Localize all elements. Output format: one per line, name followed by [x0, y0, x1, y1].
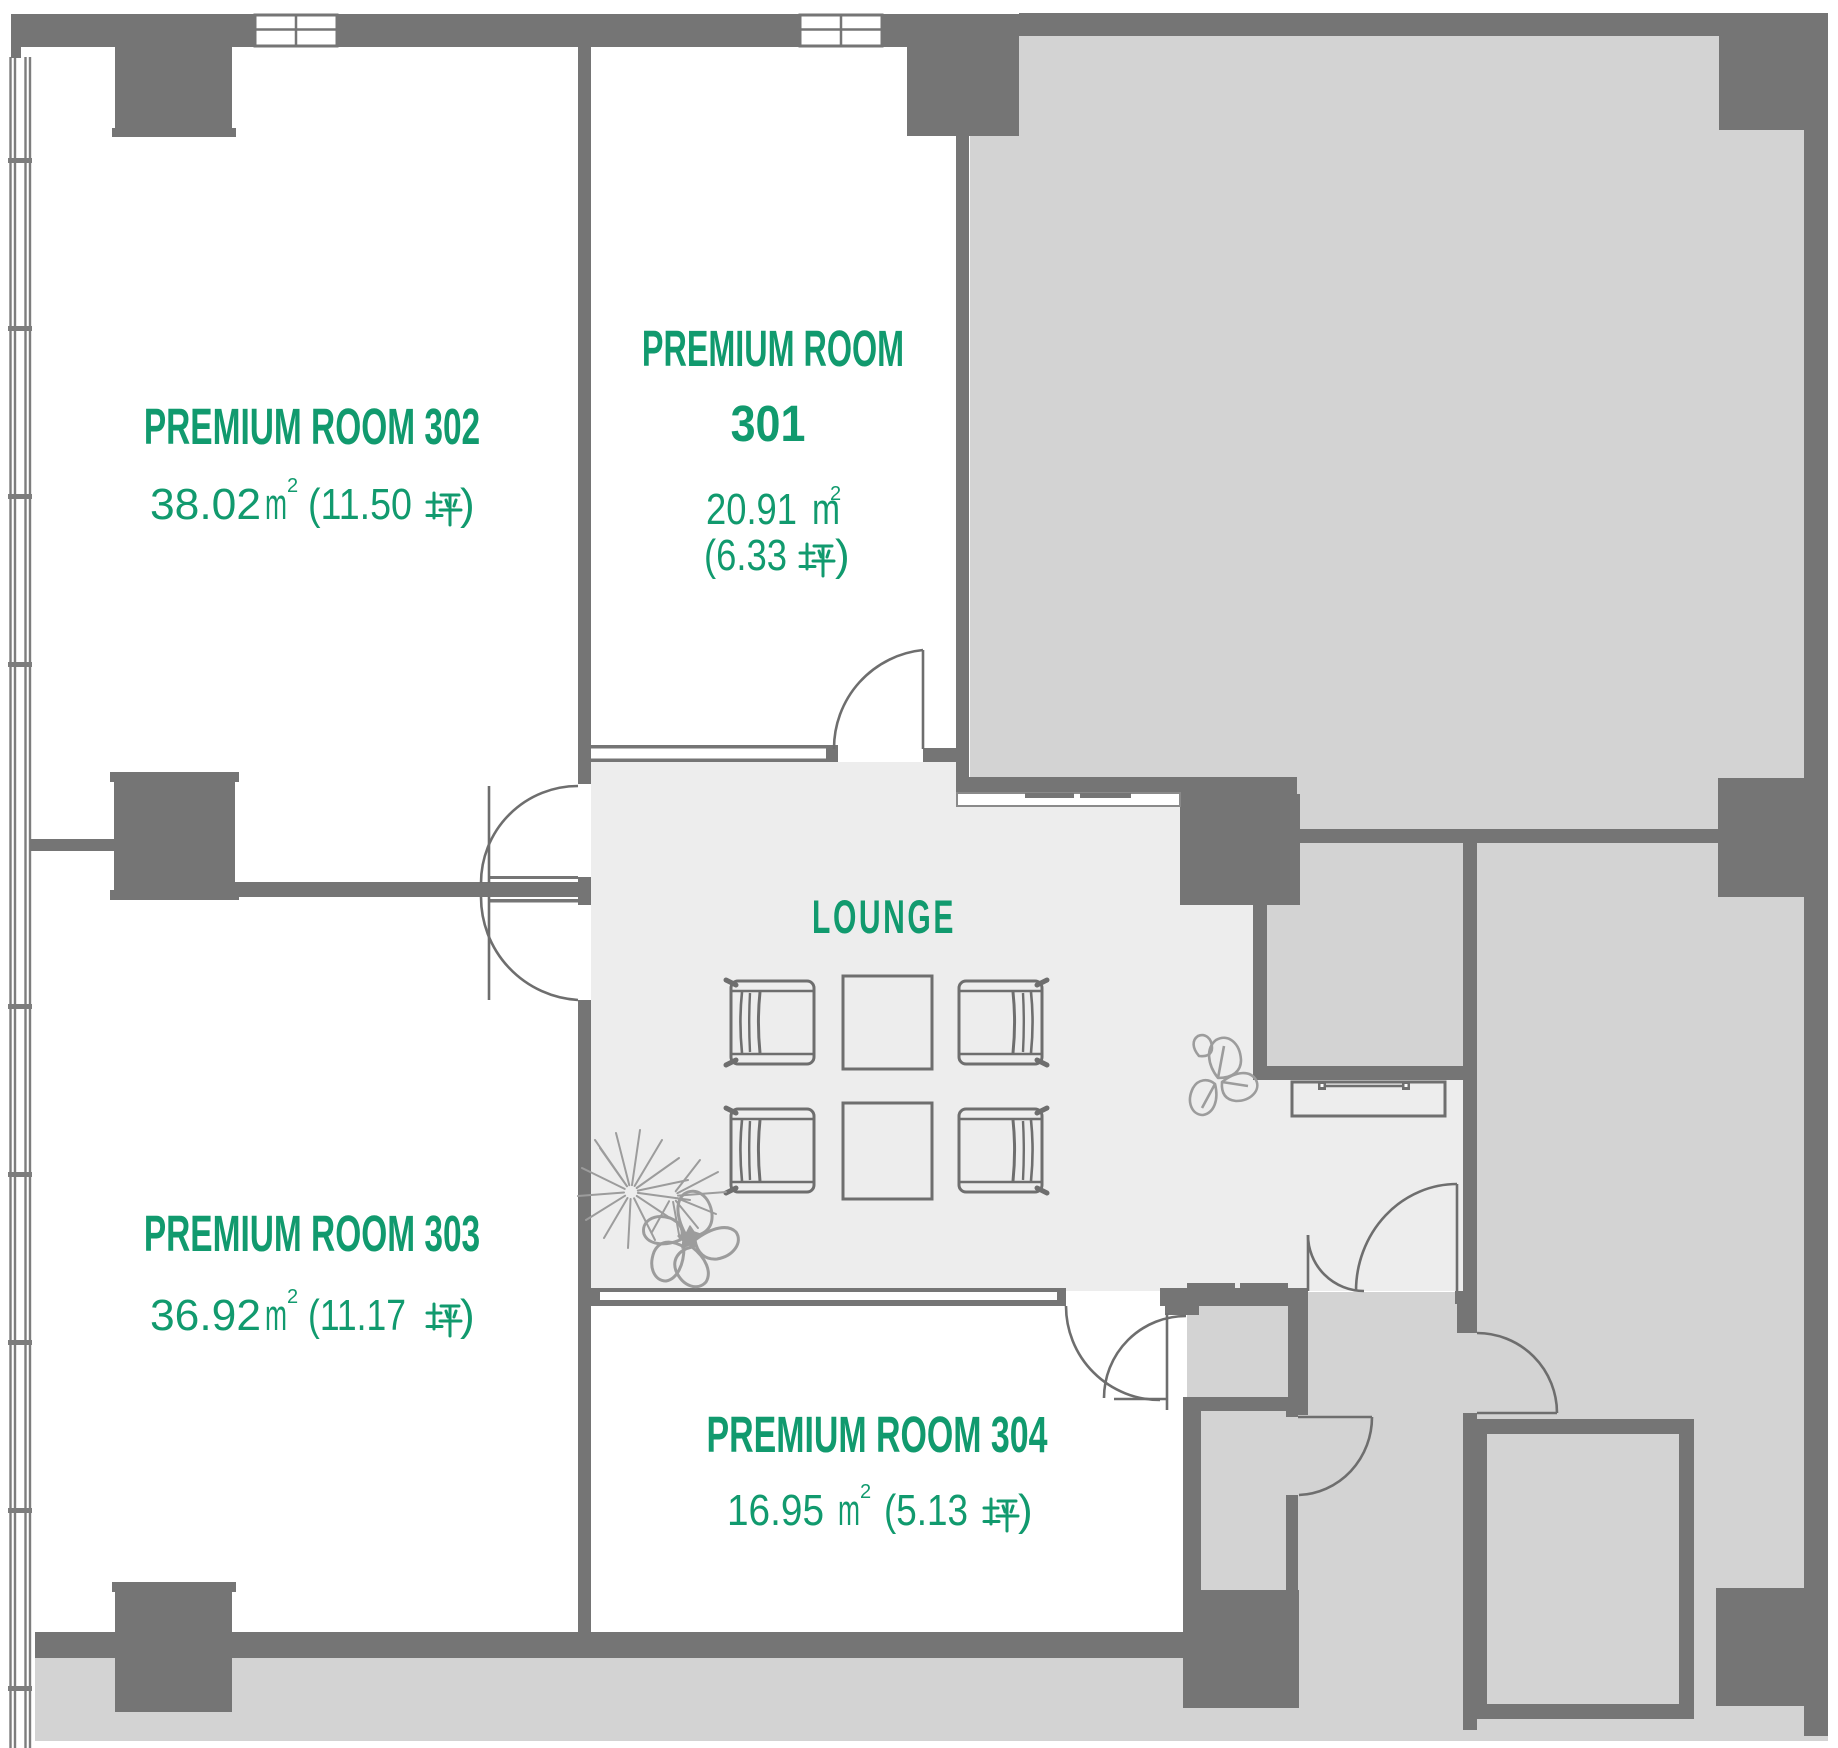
svg-text:20.91: 20.91	[706, 485, 797, 534]
svg-text:m: m	[838, 1486, 860, 1535]
svg-text:): )	[460, 480, 475, 529]
svg-text:38.02: 38.02	[150, 480, 261, 529]
svg-text:PREMIUM ROOM 303: PREMIUM ROOM 303	[144, 1206, 480, 1263]
svg-text:(11.17: (11.17	[308, 1291, 406, 1340]
svg-text:PREMIUM ROOM: PREMIUM ROOM	[642, 321, 904, 378]
svg-text:36.92: 36.92	[150, 1291, 261, 1340]
svg-text:2: 2	[287, 475, 298, 497]
svg-text:2: 2	[287, 1286, 298, 1308]
svg-text:m: m	[265, 480, 287, 529]
svg-text:(11.50: (11.50	[308, 480, 412, 529]
svg-text:PREMIUM ROOM 302: PREMIUM ROOM 302	[144, 399, 480, 456]
svg-text:): )	[1018, 1486, 1033, 1535]
svg-text:(6.33: (6.33	[704, 531, 787, 580]
svg-text:2: 2	[860, 1481, 871, 1503]
svg-text:301: 301	[731, 396, 806, 452]
svg-text:): )	[835, 531, 850, 580]
svg-text:): )	[460, 1291, 475, 1340]
svg-text:2: 2	[830, 483, 841, 505]
svg-text:m: m	[265, 1291, 287, 1340]
svg-text:(5.13: (5.13	[884, 1486, 968, 1535]
svg-text:PREMIUM ROOM 304: PREMIUM ROOM 304	[706, 1407, 1047, 1464]
svg-text:LOUNGE: LOUNGE	[812, 891, 956, 943]
svg-text:16.95: 16.95	[727, 1486, 824, 1535]
